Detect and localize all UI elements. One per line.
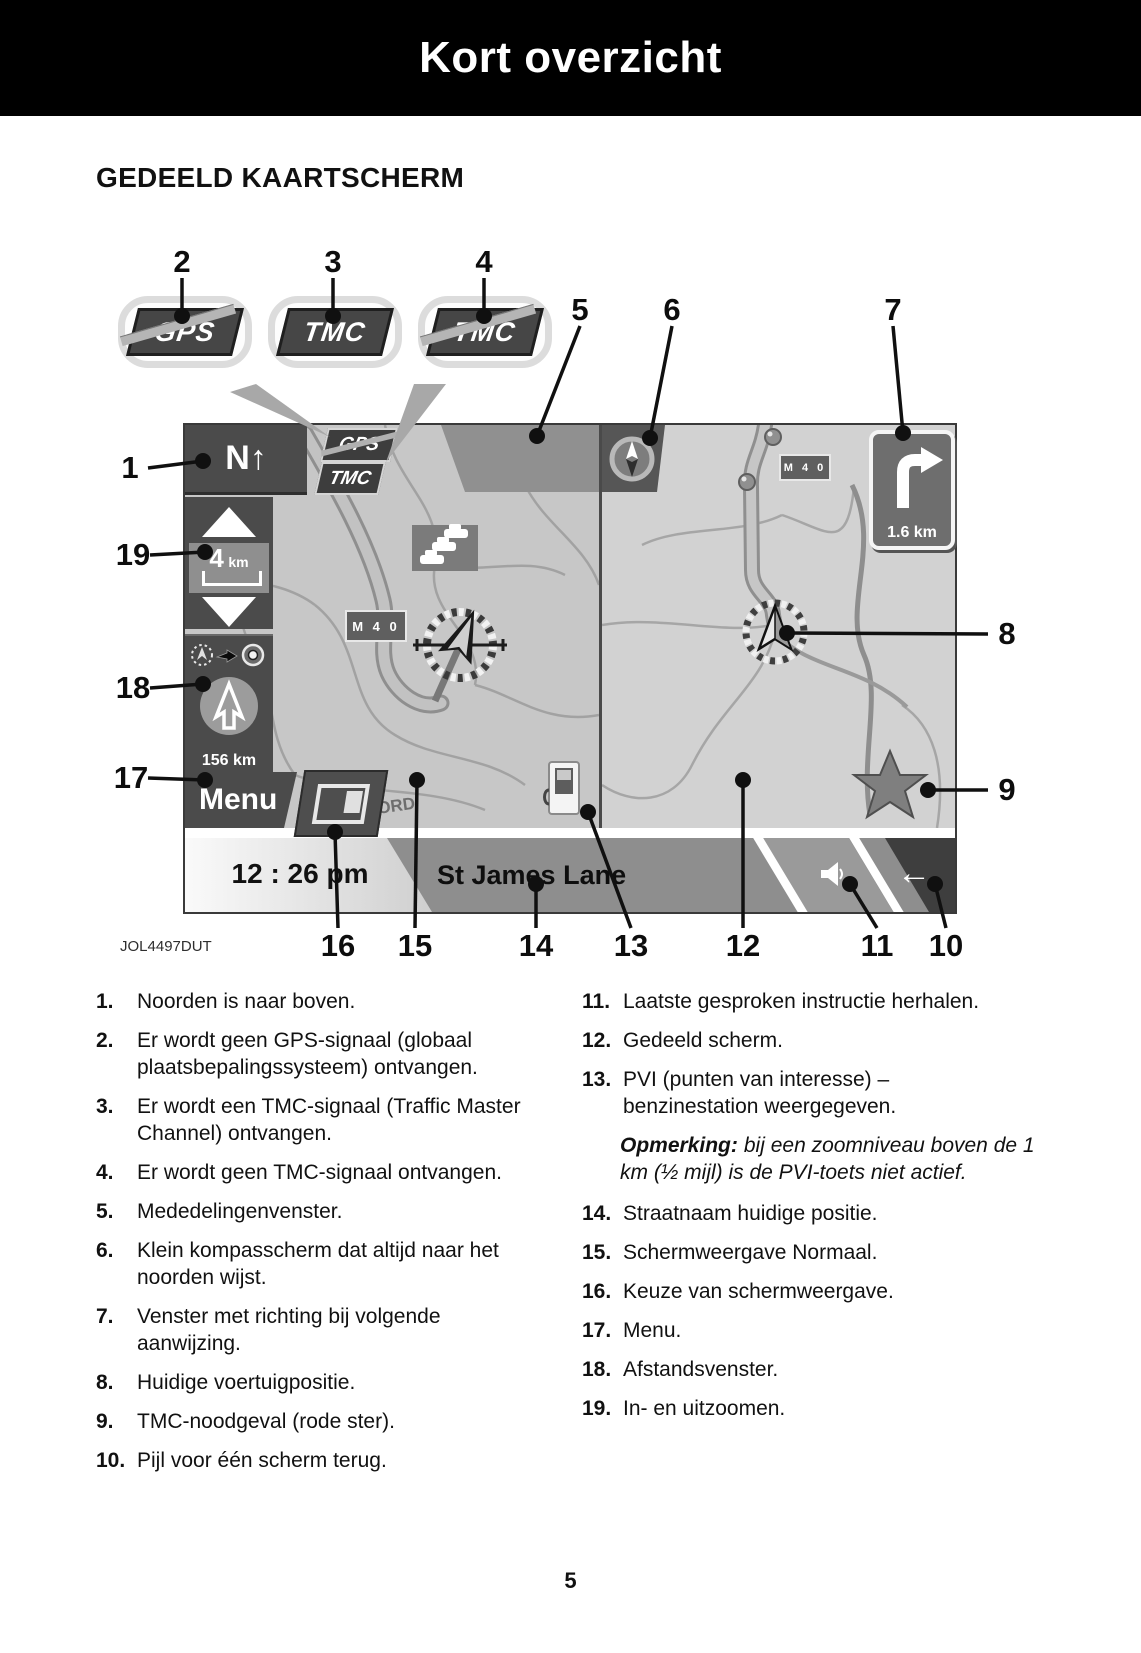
- back-arrow-icon: ←: [897, 854, 931, 893]
- legend-column-right: 11.Laatste gesproken instructie herhalen…: [582, 988, 1057, 1434]
- road-badge-right: M 4 0: [779, 454, 831, 481]
- badge-gps-no-signal: GPS: [118, 296, 252, 368]
- callout-10: 10: [929, 928, 963, 964]
- legend-column-left: 1.Noorden is naar boven. 2.Er wordt geen…: [96, 988, 556, 1486]
- legend-item: 13.PVI (punten van interesse) – benzines…: [582, 1066, 1057, 1120]
- vehicle-position-icon: [746, 603, 804, 661]
- page-header: Kort overzicht: [0, 0, 1141, 116]
- distance-window: 156 km: [185, 674, 273, 772]
- legend-item: 18.Afstandsvenster.: [582, 1356, 1057, 1383]
- legend-item: 7.Venster met richting bij volgende aanw…: [96, 1303, 556, 1357]
- split-divider: [599, 425, 602, 828]
- tmc-status-badge: TMC: [318, 462, 378, 491]
- callout-18: 18: [116, 670, 150, 706]
- road-badge-left: M 4 0: [345, 610, 407, 642]
- distance-remaining: 156 km: [185, 752, 273, 770]
- menu-button: Menu: [185, 772, 297, 828]
- screen-view-button: [294, 770, 389, 837]
- speaker-icon: [819, 860, 845, 888]
- section-title: GEDEELD KAARTSCHERM: [96, 162, 464, 194]
- turn-right-arrow-icon: [877, 434, 947, 510]
- page-number: 5: [0, 1568, 1141, 1594]
- callout-11: 11: [861, 928, 894, 964]
- next-turn-window: 1.6 km: [869, 430, 955, 550]
- gps-status-badge: GPS: [324, 428, 390, 458]
- legend-item: 1.Noorden is naar boven.: [96, 988, 556, 1015]
- callout-19: 19: [116, 537, 150, 573]
- callout-3: 3: [324, 244, 341, 280]
- scale-bracket: [202, 571, 262, 586]
- nav-screen: M 4 0 FORD: [183, 423, 957, 914]
- callout-4: 4: [475, 244, 492, 280]
- manual-page: Kort overzicht GEDEELD KAARTSCHERM GPS T…: [0, 0, 1141, 1653]
- legend-item: 5.Mededelingenvenster.: [96, 1198, 556, 1225]
- traffic-jam-icon: [412, 524, 478, 571]
- tmc-signal-icon: TMC: [276, 308, 394, 356]
- zoom-in-icon: [202, 507, 256, 537]
- legend-item: 15.Schermweergave Normaal.: [582, 1239, 1057, 1266]
- legend-item: 4.Er wordt geen TMC-signaal ontvangen.: [96, 1159, 556, 1186]
- callout-13: 13: [614, 928, 648, 964]
- legend-item: 10.Pijl voor één scherm terug.: [96, 1447, 556, 1474]
- legend-item: 3.Er wordt een TMC-signaal (Traffic Mast…: [96, 1093, 556, 1147]
- legend-item: 14.Straatnaam huidige positie.: [582, 1200, 1057, 1227]
- message-window: [441, 425, 599, 492]
- legend-item: 6.Klein kompasscherm dat altijd naar het…: [96, 1237, 556, 1291]
- callout-12: 12: [726, 928, 760, 964]
- legend-item: 8.Huidige voertuigpositie.: [96, 1369, 556, 1396]
- callout-6: 6: [663, 292, 680, 328]
- callout-16: 16: [321, 928, 355, 964]
- callout-17: 17: [114, 760, 148, 796]
- north-up-button: N↑: [185, 425, 307, 495]
- split-view-icon: [312, 784, 370, 824]
- clock: 12 : 26 pm: [205, 858, 395, 890]
- legend-item: 16.Keuze van schermweergave.: [582, 1278, 1057, 1305]
- turn-distance: 1.6 km: [873, 524, 951, 542]
- callout-9: 9: [998, 772, 1015, 808]
- legend-item: 19.In- en uitzoomen.: [582, 1395, 1057, 1422]
- callout-8: 8: [998, 616, 1015, 652]
- callout-7: 7: [884, 292, 901, 328]
- tmc-emergency-star-icon: [854, 751, 926, 817]
- callout-5: 5: [571, 292, 588, 328]
- badge-tmc-no-signal: TMC: [418, 296, 552, 368]
- zoom-scale-window: 4 km: [189, 543, 269, 593]
- callout-14: 14: [519, 928, 553, 964]
- status-bar: 12 : 26 pm St James Lane ←: [185, 838, 955, 912]
- direction-circle-icon: [197, 676, 261, 740]
- figure-code: JOL4497DUT: [120, 938, 212, 955]
- mode-icons: [189, 641, 269, 669]
- callout-2: 2: [173, 244, 190, 280]
- legend-item: 2.Er wordt geen GPS-signaal (globaal pla…: [96, 1027, 556, 1081]
- fuel-station-icon: [543, 760, 581, 816]
- legend-item: 17.Menu.: [582, 1317, 1057, 1344]
- street-name: St James Lane: [437, 860, 626, 891]
- zoom-out-icon: [202, 597, 256, 627]
- badge-tmc-signal: TMC: [268, 296, 402, 368]
- page-title: Kort overzicht: [419, 33, 722, 83]
- legend-item: 9.TMC-noodgeval (rode ster).: [96, 1408, 556, 1435]
- map-mode-indicator: [185, 634, 273, 674]
- mini-compass-icon: [602, 425, 665, 492]
- zoom-control: 4 km: [185, 497, 273, 629]
- legend-item: 12.Gedeeld scherm.: [582, 1027, 1057, 1054]
- callout-1: 1: [121, 450, 138, 486]
- legend-item: 11.Laatste gesproken instructie herhalen…: [582, 988, 1057, 1015]
- compass-rose-icon: [413, 603, 507, 678]
- callout-15: 15: [398, 928, 432, 964]
- legend-note: Opmerking:bij een zoomniveau boven de 1 …: [620, 1132, 1048, 1186]
